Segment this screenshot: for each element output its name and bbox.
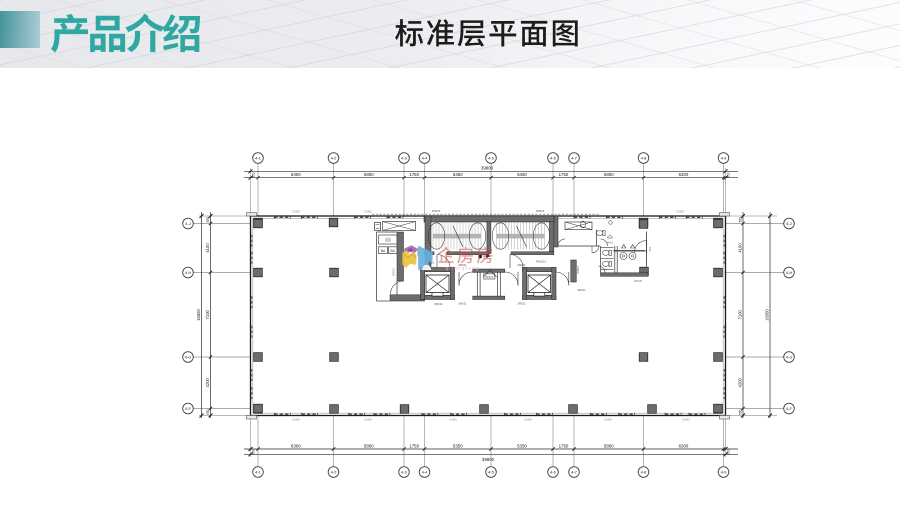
svg-text:ZM021: ZM021 xyxy=(577,266,580,274)
svg-text:550: 550 xyxy=(726,449,730,455)
svg-text:C2415: C2415 xyxy=(449,418,457,422)
svg-text:4-6: 4-6 xyxy=(550,470,557,475)
svg-text:ZM021: ZM021 xyxy=(434,302,443,306)
svg-text:550: 550 xyxy=(739,409,743,415)
svg-text:4200: 4200 xyxy=(205,377,210,387)
svg-text:C2415: C2415 xyxy=(364,418,372,422)
svg-text:1750: 1750 xyxy=(559,172,569,177)
svg-text:5800: 5800 xyxy=(604,172,614,177)
svg-text:4-J: 4-J xyxy=(185,221,191,226)
svg-text:16500: 16500 xyxy=(765,309,770,321)
svg-text:7100: 7100 xyxy=(738,309,743,319)
svg-text:4-9: 4-9 xyxy=(721,156,728,161)
svg-text:4-H: 4-H xyxy=(786,270,793,275)
svg-text:550: 550 xyxy=(739,217,743,223)
svg-text:FWJ021: FWJ021 xyxy=(536,259,547,263)
svg-text:4-9: 4-9 xyxy=(721,470,728,475)
svg-text:6300: 6300 xyxy=(679,172,689,177)
svg-text:W021: W021 xyxy=(607,242,614,245)
svg-text:C2415: C2415 xyxy=(604,418,612,422)
svg-text:5350: 5350 xyxy=(517,443,527,448)
svg-text:550: 550 xyxy=(206,217,210,223)
svg-text:4200: 4200 xyxy=(738,377,743,387)
svg-text:C2415: C2415 xyxy=(676,210,684,214)
svg-text:4-F: 4-F xyxy=(185,406,192,411)
svg-text:4-5: 4-5 xyxy=(488,156,495,161)
svg-text:BA: BA xyxy=(381,249,386,253)
svg-text:▒▒: ▒▒ xyxy=(385,237,391,242)
svg-text:6300: 6300 xyxy=(679,443,689,448)
svg-text:q i f a n g f a n g: q i f a n g f a n g xyxy=(446,266,479,271)
svg-text:5800: 5800 xyxy=(364,172,374,177)
svg-text:ZM021: ZM021 xyxy=(517,263,526,267)
svg-text:550: 550 xyxy=(206,409,210,415)
svg-text:550: 550 xyxy=(726,172,730,178)
svg-text:550: 550 xyxy=(252,449,256,455)
svg-text:DK026: DK026 xyxy=(432,209,441,213)
svg-text:4-4: 4-4 xyxy=(422,470,429,475)
svg-text:39800: 39800 xyxy=(481,166,494,171)
svg-text:4XX: 4XX xyxy=(649,246,652,251)
svg-text:4-6: 4-6 xyxy=(550,156,557,161)
svg-text:4-1: 4-1 xyxy=(255,470,262,475)
svg-text:4100: 4100 xyxy=(205,243,210,253)
svg-text:ZM021: ZM021 xyxy=(458,302,467,306)
svg-text:5350: 5350 xyxy=(517,172,527,177)
svg-text:4-5: 4-5 xyxy=(488,470,495,475)
svg-text:4-G: 4-G xyxy=(786,355,793,360)
svg-text:BA: BA xyxy=(390,249,395,253)
svg-text:4-4: 4-4 xyxy=(422,156,429,161)
svg-text:C2415: C2415 xyxy=(292,210,300,214)
svg-text:16500: 16500 xyxy=(196,309,201,321)
svg-text:4-1: 4-1 xyxy=(255,156,262,161)
svg-text:ZM021: ZM021 xyxy=(577,288,586,292)
svg-text:1750: 1750 xyxy=(409,172,419,177)
svg-text:39800: 39800 xyxy=(482,457,495,462)
svg-text:4-7: 4-7 xyxy=(571,156,578,161)
svg-text:1750: 1750 xyxy=(559,443,569,448)
svg-text:4-3: 4-3 xyxy=(401,156,408,161)
svg-text:4-F: 4-F xyxy=(786,406,793,411)
svg-text:1750: 1750 xyxy=(409,443,419,448)
svg-text:6300: 6300 xyxy=(291,172,301,177)
svg-text:550: 550 xyxy=(252,172,256,178)
svg-text:6300: 6300 xyxy=(291,443,301,448)
svg-text:ZM021: ZM021 xyxy=(517,302,526,306)
svg-text:DK025: DK025 xyxy=(634,279,642,283)
svg-text:4-8: 4-8 xyxy=(641,470,648,475)
svg-text:4-3: 4-3 xyxy=(401,470,408,475)
svg-text:XFHT: XFHT xyxy=(485,275,493,279)
svg-text:7100: 7100 xyxy=(205,309,210,319)
svg-text:4-J: 4-J xyxy=(786,221,792,226)
svg-text:4-2: 4-2 xyxy=(331,156,338,161)
svg-text:ZM021: ZM021 xyxy=(392,267,396,276)
svg-text:C2415: C2415 xyxy=(292,418,300,422)
svg-text:5350: 5350 xyxy=(453,172,463,177)
svg-text:DK026: DK026 xyxy=(536,209,545,213)
svg-text:4-7: 4-7 xyxy=(571,470,578,475)
svg-text:5350: 5350 xyxy=(453,443,463,448)
svg-text:C2415: C2415 xyxy=(364,210,372,214)
svg-text:4-H: 4-H xyxy=(185,270,192,275)
svg-text:5800: 5800 xyxy=(364,443,374,448)
svg-text:C2415: C2415 xyxy=(682,418,690,422)
svg-text:4-8: 4-8 xyxy=(641,156,648,161)
svg-text:C2415: C2415 xyxy=(524,418,532,422)
svg-text:5800: 5800 xyxy=(604,443,614,448)
svg-text:4-2: 4-2 xyxy=(331,470,338,475)
svg-text:4-G: 4-G xyxy=(185,355,192,360)
svg-text:4100: 4100 xyxy=(738,243,743,253)
